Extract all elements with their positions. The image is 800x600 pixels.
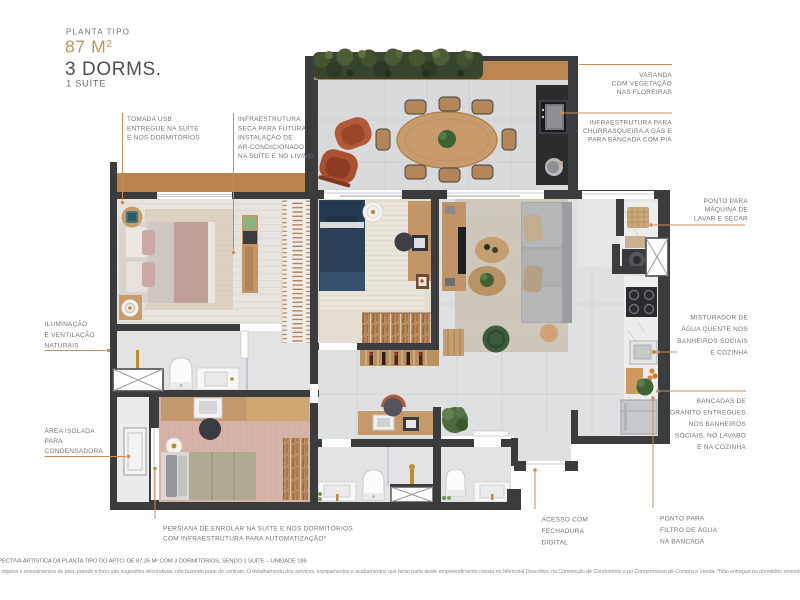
svg-text:E NOS DORMITÓRIOS: E NOS DORMITÓRIOS (127, 133, 200, 142)
svg-text:ÁREA ISOLADA: ÁREA ISOLADA (45, 426, 96, 435)
svg-text:INSTALAÇÃO DE: INSTALAÇÃO DE (238, 133, 293, 142)
svg-text:CHURRASQUEIRA A GÁS E: CHURRASQUEIRA A GÁS E (583, 126, 672, 135)
svg-text:PONTO PARA: PONTO PARA (703, 198, 748, 205)
svg-text:E NA COZINHA: E NA COZINHA (697, 444, 746, 451)
svg-text:E VENTILAÇÃO: E VENTILAÇÃO (45, 330, 95, 339)
svg-text:ACESSO COM: ACESSO COM (542, 517, 589, 524)
svg-text:NATURAIS: NATURAIS (45, 343, 80, 350)
svg-text:PERSIANA DE ENROLAR NA SUÍTE E: PERSIANA DE ENROLAR NA SUÍTE E NOS DORMI… (163, 524, 353, 533)
svg-text:ÁGUA QUENTE NOS: ÁGUA QUENTE NOS (681, 324, 748, 333)
svg-text:DIGITAL: DIGITAL (542, 540, 569, 547)
svg-text:MISTURADOR DE: MISTURADOR DE (690, 315, 748, 322)
svg-text:PARA: PARA (45, 438, 64, 445)
svg-text:MÁQUINA DE: MÁQUINA DE (705, 205, 749, 214)
svg-text:ILUMINAÇÃO: ILUMINAÇÃO (45, 319, 88, 328)
svg-text:NA SUÍTE E NO LIVING: NA SUÍTE E NO LIVING (238, 151, 313, 160)
svg-text:PARA BANCADA COM PIA: PARA BANCADA COM PIA (588, 137, 672, 144)
svg-text:LAVAR E SECAR: LAVAR E SECAR (694, 215, 748, 222)
svg-text:FILTRO DE ÁGUA: FILTRO DE ÁGUA (660, 525, 718, 534)
svg-text:GRANITO ENTREGUES: GRANITO ENTREGUES (670, 409, 746, 416)
svg-text:CONDENSADORA: CONDENSADORA (45, 448, 104, 455)
svg-text:AR-CONDICIONADO: AR-CONDICIONADO (238, 144, 304, 151)
svg-text:TOMADA USB: TOMADA USB (127, 116, 172, 123)
svg-text:INFRAESTRUTURA: INFRAESTRUTURA (238, 116, 301, 123)
svg-text:SECA PARA FUTURA: SECA PARA FUTURA (238, 125, 307, 132)
svg-text:NOS BANHEIROS: NOS BANHEIROS (689, 421, 747, 428)
svg-text:COM VEGETAÇÃO: COM VEGETAÇÃO (612, 79, 672, 88)
svg-text:1 SUÍTE: 1 SUÍTE (66, 79, 106, 90)
svg-text:NA BANCADA: NA BANCADA (660, 538, 705, 545)
svg-text:Os móveis, objetos e revestime: Os móveis, objetos e revestimentos de pi… (0, 569, 800, 575)
svg-text:VARANDA: VARANDA (639, 72, 672, 79)
svg-text:NAS FLOREIRAS: NAS FLOREIRAS (617, 89, 673, 96)
svg-text:PLANTA TIPO: PLANTA TIPO (66, 28, 130, 37)
svg-text:87 M2: 87 M2 (65, 37, 112, 57)
svg-text:SOCIAIS, NO LAVABO: SOCIAIS, NO LAVABO (675, 432, 746, 439)
svg-text:BANHEIROS SOCIAIS: BANHEIROS SOCIAIS (677, 338, 748, 345)
svg-text:E COZINHA: E COZINHA (710, 350, 748, 357)
svg-text:INFRAESTRUTURA PARA: INFRAESTRUTURA PARA (589, 120, 672, 127)
svg-text:FECHADURA: FECHADURA (542, 528, 585, 535)
svg-text:ENTREGUE NA SUÍTE: ENTREGUE NA SUÍTE (127, 123, 199, 132)
svg-text:BANCADAS DE: BANCADAS DE (697, 398, 747, 405)
svg-text:COM INFRAESTRUTURA PARA AUTOMA: COM INFRAESTRUTURA PARA AUTOMATIZAÇÃO* (163, 534, 327, 543)
svg-text:PERSPECTIVA ARTÍSTICA DA PLANT: PERSPECTIVA ARTÍSTICA DA PLANTA TIPO DO … (0, 558, 307, 565)
svg-text:PONTO PARA: PONTO PARA (660, 515, 705, 522)
svg-text:3 DORMS.: 3 DORMS. (65, 59, 162, 80)
